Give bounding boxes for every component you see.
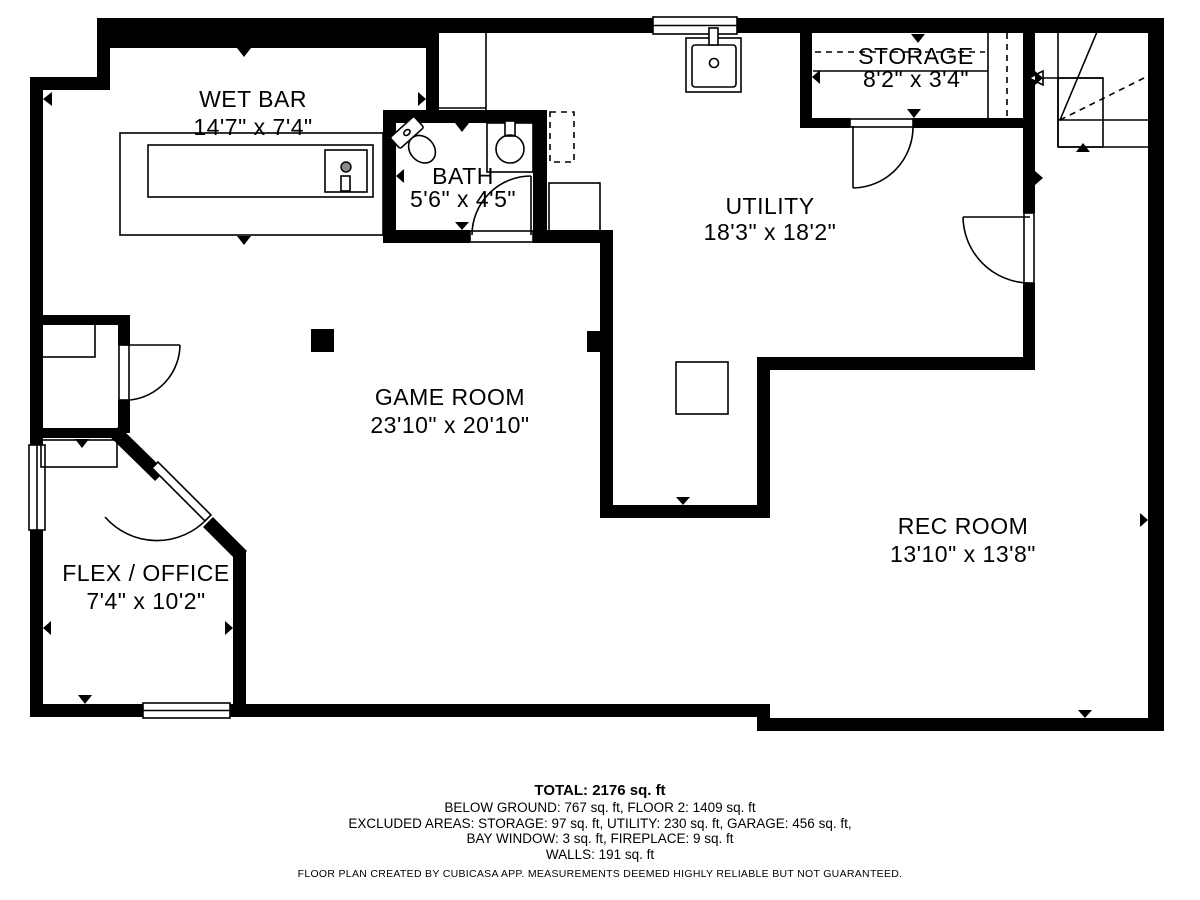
support-column (587, 331, 600, 352)
room-dims-storage: 8'2" x 3'4" (863, 66, 969, 92)
room-dims-wet-bar: 14'7" x 7'4" (193, 114, 312, 140)
room-dims-game-room: 23'10" x 20'10" (370, 412, 529, 438)
room-label-flex-office: FLEX / OFFICE (62, 560, 230, 586)
room-label-utility: UTILITY (725, 193, 814, 219)
room-label-rec-room: REC ROOM (898, 513, 1029, 539)
room-dims-bath: 5'6" x 4'5" (410, 186, 516, 212)
walls-area-line: WALLS: 191 sq. ft (546, 847, 655, 862)
window (29, 445, 45, 530)
total-area-text: TOTAL: 2176 sq. ft (534, 782, 665, 799)
support-column (311, 329, 334, 352)
window (653, 17, 737, 34)
disclaimer-text: FLOOR PLAN CREATED BY CUBICASA APP. MEAS… (298, 868, 903, 880)
window (143, 703, 230, 718)
area-breakdown-line: BELOW GROUND: 767 sq. ft, FLOOR 2: 1409 … (444, 800, 756, 815)
room-label-wet-bar: WET BAR (199, 86, 307, 112)
excluded-areas-line: EXCLUDED AREAS: STORAGE: 97 sq. ft, UTIL… (348, 816, 851, 831)
room-dims-rec-room: 13'10" x 13'8" (890, 541, 1036, 567)
floor-plan: WET BAR 14'7" x 7'4" BATH 5'6" x 4'5" ST… (0, 0, 1200, 900)
room-dims-utility: 18'3" x 18'2" (704, 219, 837, 245)
room-label-game-room: GAME ROOM (375, 384, 525, 410)
room-dims-flex-office: 7'4" x 10'2" (86, 588, 205, 614)
excluded-areas-line2: BAY WINDOW: 3 sq. ft, FIREPLACE: 9 sq. f… (466, 831, 733, 846)
